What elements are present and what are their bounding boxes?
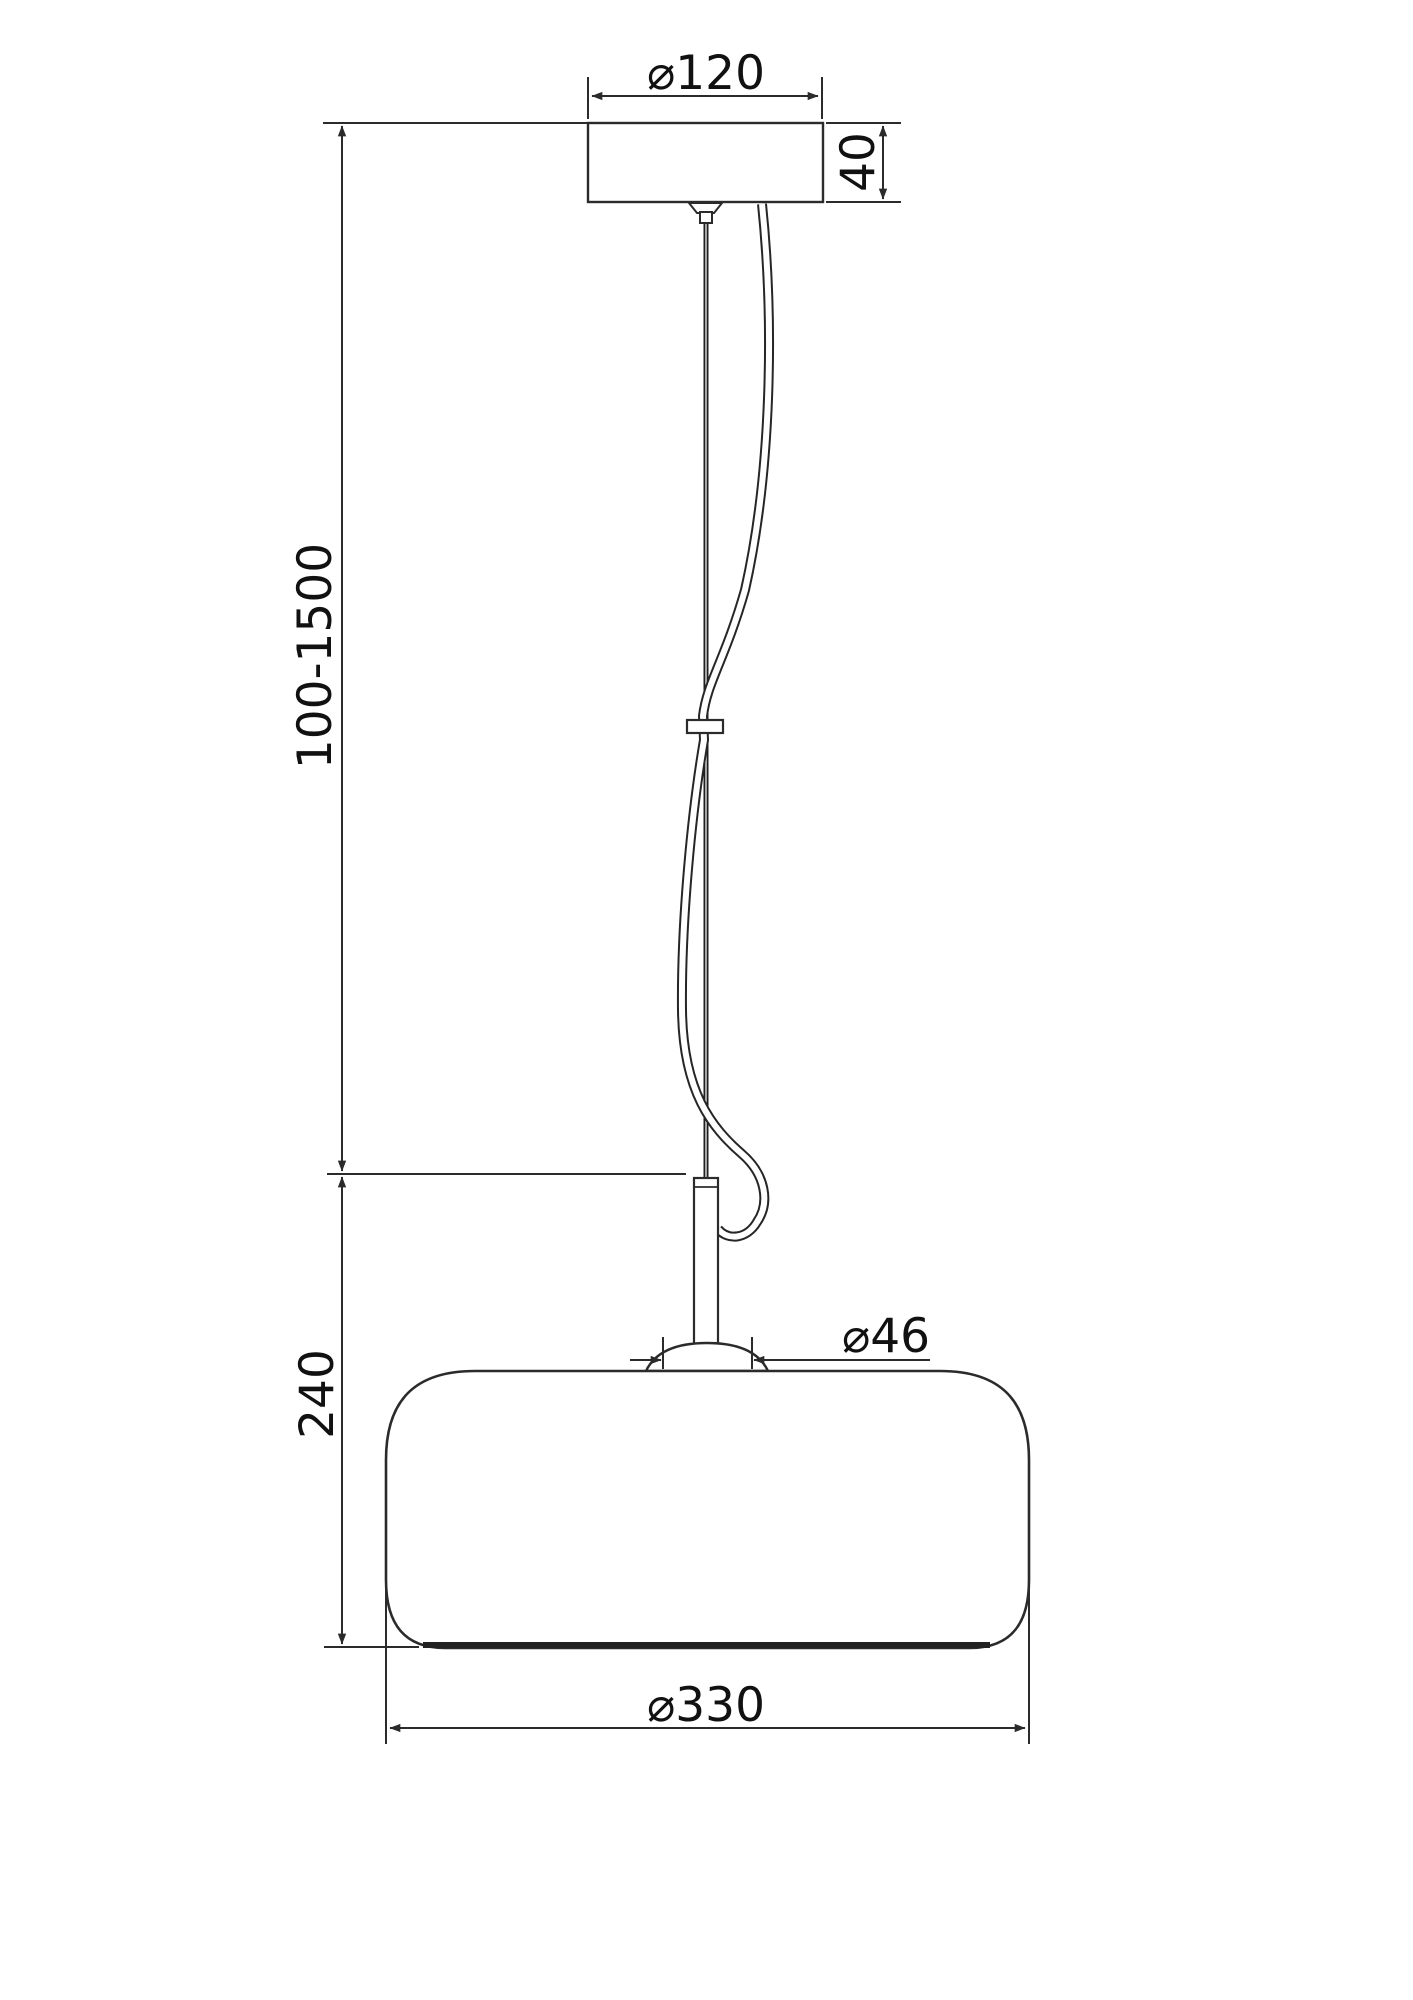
stem [694,1178,718,1370]
cable-gland [689,203,722,223]
lampshade [386,1371,1029,1648]
dim-label-shade-diameter: ⌀330 [647,1678,765,1733]
dim-label-shade-height: 240 [290,1349,345,1439]
dim-label-canopy-height: 40 [831,132,886,192]
technical-drawing-canvas: ⌀120 40 100-1500 240 ⌀46 ⌀330 [0,0,1413,2000]
dim-label-canopy-diameter: ⌀120 [647,46,765,101]
dim-label-socket-diameter: ⌀46 [842,1309,930,1364]
ceiling-canopy [588,123,823,202]
dim-label-suspension-length: 100-1500 [288,543,343,769]
socket-dome [646,1343,768,1371]
cord-clip [687,720,723,733]
dim-suspension-length [323,123,686,1174]
pendant-lamp-drawing: ⌀120 40 100-1500 240 ⌀46 ⌀330 [0,0,1413,2000]
